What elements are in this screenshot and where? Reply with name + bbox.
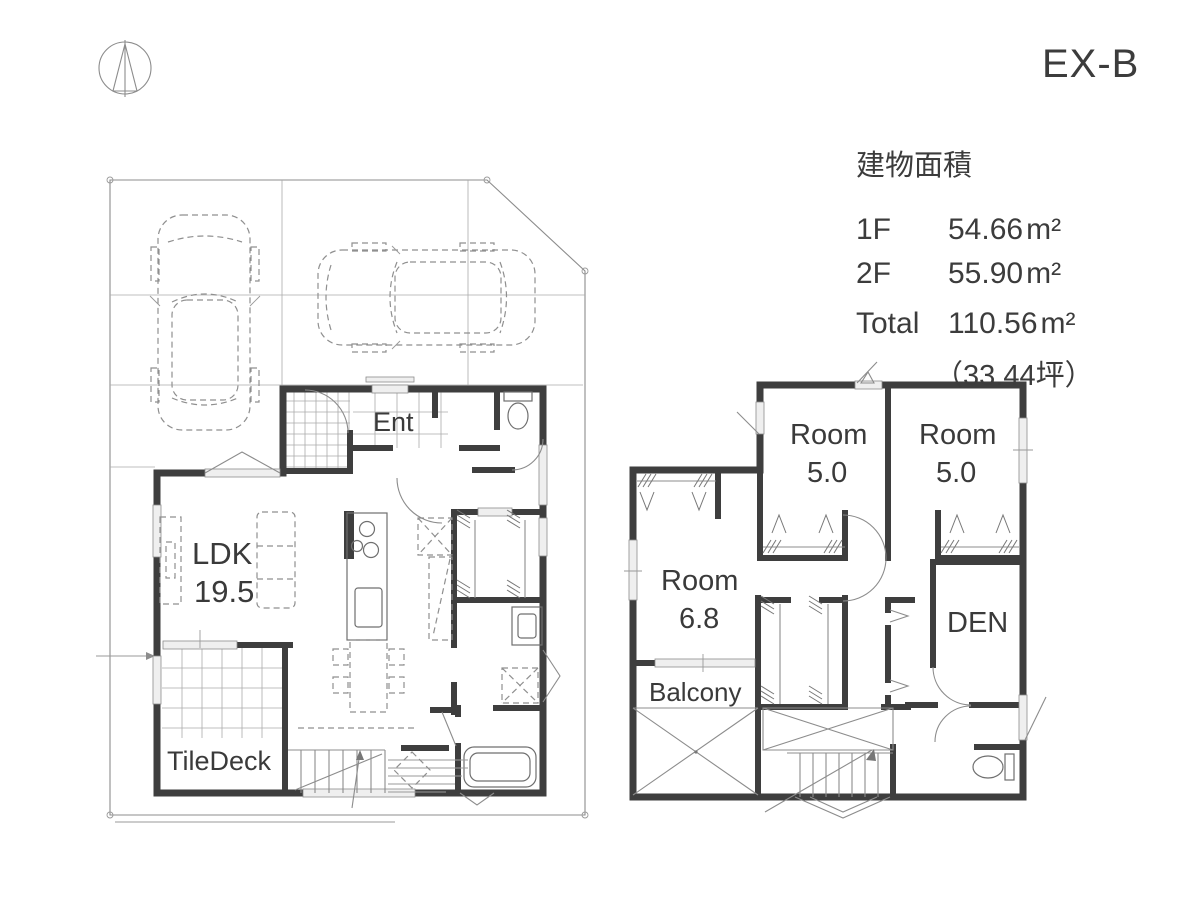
closet-room-a	[763, 515, 845, 553]
area-row-unit: m²	[1041, 307, 1076, 341]
tv-board	[160, 517, 181, 604]
washer-pan	[502, 668, 538, 703]
area-row-value: 110.56	[948, 307, 1038, 341]
plan-code: EX-B	[1042, 42, 1139, 87]
room-size-b: 5.0	[936, 457, 976, 489]
closet-1f	[457, 510, 525, 598]
toilet-1f	[504, 392, 532, 429]
area-row-value: 54.66	[948, 213, 1023, 247]
room-label-ent: Ent	[373, 407, 414, 437]
room-size-ldk: 19.5	[194, 574, 254, 609]
room-label-balcony: Balcony	[649, 677, 742, 707]
room-label-ldk: LDK	[192, 536, 253, 571]
car-top-view-1	[150, 215, 260, 430]
area-row-2f: 2F 55.90 m²	[856, 252, 1136, 296]
storage-dashed	[418, 518, 452, 640]
building-area-table: 建物面積 1F 54.66 m² 2F 55.90 m² Total 110.5…	[856, 142, 1136, 394]
accordion-door-marks	[890, 610, 908, 692]
area-row-1f: 1F 54.66 m²	[856, 208, 1136, 252]
floor-plan-drawing: Ent LDK 19.5 TileDeck	[0, 0, 1200, 900]
area-row-value: 55.90	[948, 257, 1023, 291]
area-row-total: Total 110.56 m²	[856, 302, 1136, 346]
toilet-2f	[973, 754, 1014, 780]
car-top-view-2	[318, 243, 535, 352]
room-label-tiledeck: TileDeck	[167, 746, 272, 776]
genkan-tile-grid	[283, 390, 350, 470]
north-compass-icon	[99, 40, 151, 97]
tiledeck-grid	[162, 648, 283, 738]
area-row-unit: m²	[1026, 257, 1061, 291]
room-size-a: 5.0	[807, 457, 847, 489]
closet-room-c	[637, 474, 716, 510]
closet-room-b	[941, 515, 1019, 553]
closet-hall	[761, 596, 828, 704]
vanity	[512, 607, 542, 645]
area-row-unit: m²	[1026, 213, 1061, 247]
area-table-heading: 建物面積	[856, 142, 1136, 184]
stairwell-void	[763, 708, 893, 750]
room-label-c: Room	[661, 565, 738, 597]
room-size-c: 6.8	[679, 603, 719, 635]
site-boundary	[107, 177, 588, 822]
room-label-a: Room	[790, 419, 867, 451]
room-label-b: Room	[919, 419, 996, 451]
area-row-label: 1F	[856, 213, 948, 247]
floor-plan-sheet: Ent LDK 19.5 TileDeck	[0, 0, 1200, 900]
area-row-label: 2F	[856, 257, 948, 291]
sofa	[257, 512, 295, 608]
area-row-label: Total	[856, 307, 948, 341]
balcony-brace	[633, 708, 758, 795]
stairs-1f	[288, 750, 468, 808]
dining-table	[333, 640, 404, 712]
area-total-tsubo: （33.44坪）	[856, 352, 1136, 394]
room-label-den: DEN	[947, 607, 1008, 639]
stairs-2f	[765, 749, 893, 818]
